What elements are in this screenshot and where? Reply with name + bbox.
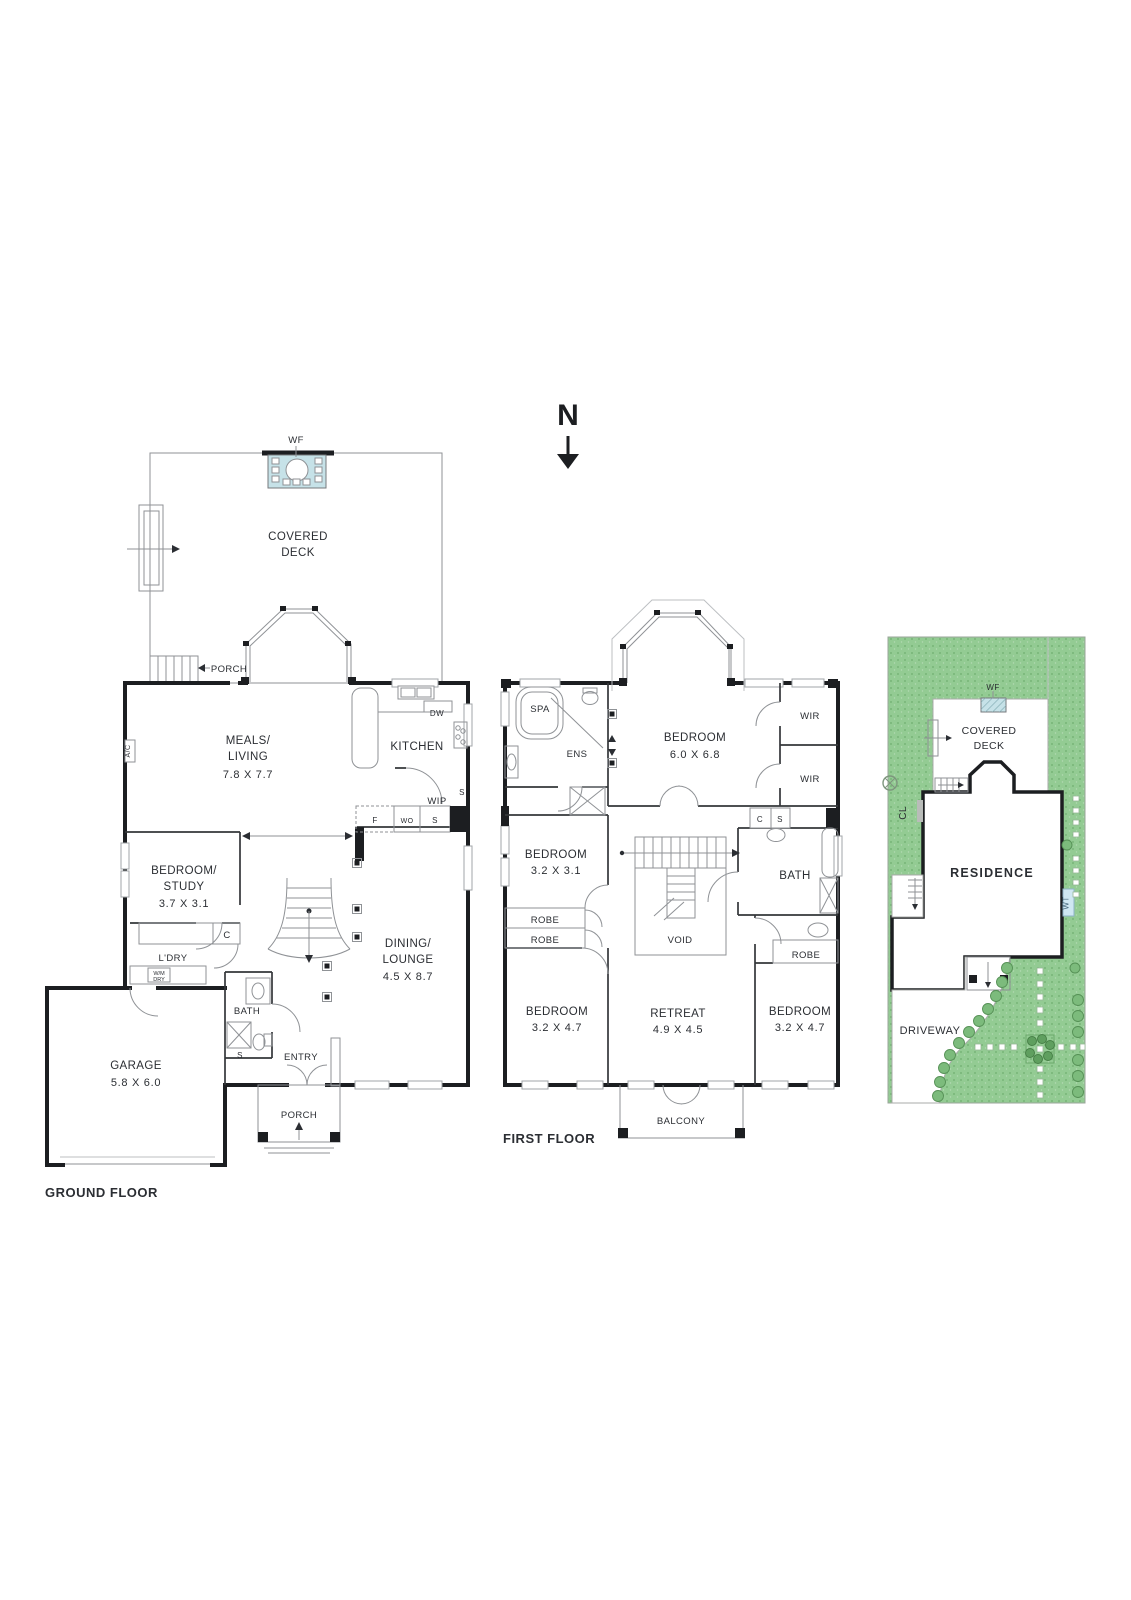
driveway-label: DRIVEWAY: [900, 1025, 961, 1037]
side-s-label: S: [459, 788, 465, 797]
clothesline-label: CL: [898, 806, 909, 820]
wt-label: WT: [1062, 896, 1071, 909]
porch-top-label: PORCH: [211, 664, 247, 675]
wf-label: WF: [288, 435, 304, 446]
cs-closets: C S: [750, 808, 838, 828]
ensuite-fixtures: [505, 687, 605, 815]
kitchen-fixtures: DW F WO S WIP S: [352, 686, 468, 832]
covered-deck-label-1: COVERED: [268, 531, 328, 543]
covered-deck-label-2: DECK: [281, 547, 315, 559]
site-water-feature: [981, 698, 1006, 712]
ens-label: ENS: [567, 749, 588, 760]
fridge-label: F: [372, 816, 377, 825]
wip-label: WIP: [427, 796, 446, 807]
wir1-label: WIR: [800, 711, 820, 722]
spa-label: SPA: [530, 704, 550, 715]
meals-dim: 7.8 X 7.7: [223, 769, 273, 781]
first-floor-plan: C S: [495, 580, 845, 1150]
first-bay-window: [612, 600, 744, 691]
ground-bath-label: BATH: [234, 1006, 260, 1017]
bed2-dim: 3.2 X 3.1: [531, 865, 581, 877]
deck-bench: [127, 505, 180, 591]
site-deck-label-2: DECK: [974, 740, 1005, 752]
laundry-label: L'DRY: [159, 953, 188, 964]
ac-unit: A/C: [125, 740, 135, 762]
site-wf-label: WF: [986, 683, 999, 692]
first-floor-title: FIRST FLOOR: [503, 1131, 595, 1146]
ground-front-porch: PORCH: [258, 1085, 340, 1153]
north-indicator: N: [540, 400, 596, 472]
bedroom-study-label-1: BEDROOM/: [151, 865, 217, 877]
retreat-dim: 4.9 X 4.5: [653, 1024, 703, 1036]
ground-floor-plan: WF COVERED DECK: [40, 420, 480, 1210]
floorplan-page: N WF COVERED DECK: [0, 0, 1131, 1600]
hall-cupboards: C: [139, 923, 240, 944]
garage-dim: 5.8 X 6.0: [111, 1077, 161, 1089]
kitchen-label: KITCHEN: [390, 741, 443, 753]
ground-stairs: [268, 878, 350, 963]
first-bath-label: BATH: [779, 870, 810, 882]
ground-floor-title: GROUND FLOOR: [45, 1185, 158, 1200]
dryer-label: DRY: [153, 977, 165, 983]
bay-window: [241, 606, 356, 684]
water-tank: WT: [1062, 889, 1075, 916]
site-deck-label-1: COVERED: [962, 725, 1017, 737]
pantry-s-label: S: [432, 816, 438, 825]
garage-label: GARAGE: [110, 1060, 162, 1072]
bed4-dim: 3.2 X 4.7: [775, 1022, 825, 1034]
meals-label-2: LIVING: [228, 751, 268, 763]
pantry-row: F WO S: [356, 806, 468, 832]
dining-dim: 4.5 X 8.7: [383, 971, 433, 983]
robe2-label: ROBE: [531, 935, 560, 946]
site-plan: WF COVERED DECK: [860, 620, 1131, 1115]
bed1-dim: 6.0 X 6.8: [670, 749, 720, 761]
bed3-label: BEDROOM: [526, 1006, 588, 1018]
bed3-dim: 3.2 X 4.7: [532, 1022, 582, 1034]
water-feature: [268, 455, 326, 488]
bedroom-study-label-2: STUDY: [164, 881, 205, 893]
garage-door: [60, 1157, 215, 1169]
laundry: W/M DRY: [130, 966, 206, 984]
dishwasher-label: DW: [430, 709, 444, 718]
site-ac-unit: [917, 800, 923, 822]
kitchen-sink-icon: [398, 686, 434, 699]
robe3-label: ROBE: [792, 950, 821, 961]
balcony: BALCONY: [618, 1085, 745, 1138]
columns: [323, 859, 362, 1002]
deck-steps: PORCH: [150, 656, 247, 684]
meals-label-1: MEALS/: [226, 735, 271, 747]
bed4-label: BEDROOM: [769, 1006, 831, 1018]
ground-covered-deck: WF COVERED DECK: [127, 435, 442, 684]
opening-arrow: [242, 832, 353, 840]
robe1-label: ROBE: [531, 915, 560, 926]
closet-c-label: C: [223, 930, 230, 941]
north-label: N: [540, 400, 596, 432]
balcony-label: BALCONY: [657, 1116, 705, 1127]
dining-label-1: DINING/: [385, 938, 432, 950]
porch-bottom-label: PORCH: [281, 1110, 317, 1121]
ac-label: A/C: [125, 745, 132, 758]
entry-label: ENTRY: [284, 1052, 318, 1063]
dining-label-2: LOUNGE: [383, 954, 434, 966]
bedroom-study-dim: 3.7 X 3.1: [159, 898, 209, 910]
wall-oven-label: WO: [401, 818, 414, 825]
s-closet-label: S: [777, 815, 783, 824]
wir2-label: WIR: [800, 774, 820, 785]
void-label: VOID: [668, 935, 693, 946]
bed2-label: BEDROOM: [525, 849, 587, 861]
c-closet-label: C: [757, 815, 763, 824]
bed1-label: BEDROOM: [664, 732, 726, 744]
north-arrow-icon: [540, 432, 596, 472]
site-side-porch: [892, 875, 923, 917]
residence-label: RESIDENCE: [950, 866, 1034, 880]
shower-label: S: [237, 1051, 243, 1060]
entry-pier: [331, 1038, 340, 1086]
retreat-label: RETREAT: [650, 1008, 706, 1020]
